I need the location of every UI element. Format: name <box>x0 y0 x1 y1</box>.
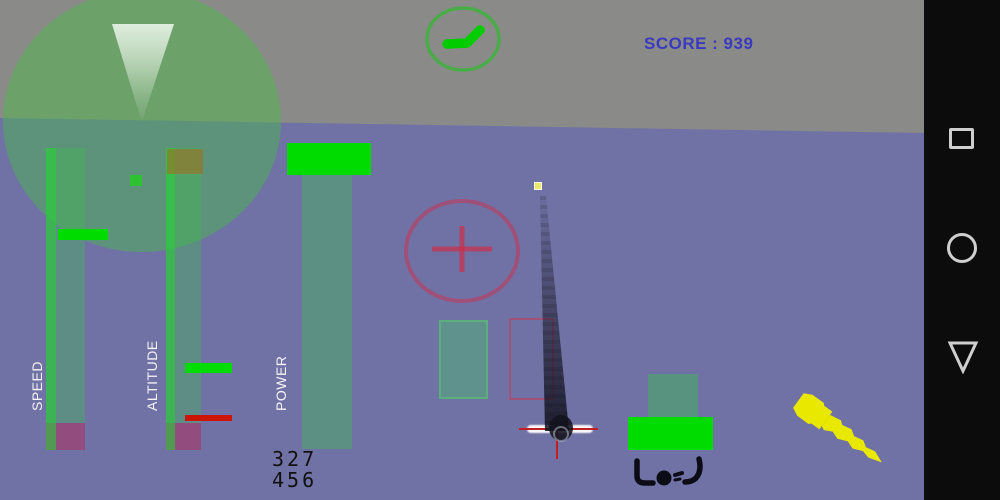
power-readout-line1: 327 <box>272 449 317 470</box>
glyph-left-hook <box>637 461 653 483</box>
glyph-right-hook <box>685 459 700 482</box>
speed-indicator-bar <box>58 229 108 240</box>
power-readout: 327 456 <box>272 449 317 491</box>
recents-button[interactable] <box>949 128 974 149</box>
game-viewport[interactable]: SPEED ALTITUDE POWER 327 456 SCORE : 939 <box>0 0 924 500</box>
power-label: POWER <box>273 356 289 411</box>
back-button[interactable] <box>947 340 979 374</box>
altitude-label: ALTITUDE <box>144 340 160 411</box>
android-nav-bar <box>924 0 1000 500</box>
power-gauge-level <box>287 143 371 175</box>
aircraft-icon <box>447 30 480 44</box>
altitude-gauge-cap <box>167 149 203 174</box>
power-gauge-track <box>302 175 352 449</box>
glyph-dash-bottom <box>675 479 680 480</box>
smoke-bands <box>540 196 569 431</box>
safe-zone-box <box>439 320 488 399</box>
screw-shaft <box>821 413 888 469</box>
aim-reticle <box>400 195 525 307</box>
altitude-indicator-bar <box>185 363 232 373</box>
score-text: SCORE : 939 <box>644 34 753 54</box>
altitude-gauge-fill <box>166 148 175 450</box>
power-readout-line2: 456 <box>272 470 317 491</box>
triangle-down-icon <box>950 343 976 371</box>
screw-powerup-icon <box>788 372 908 477</box>
altitude-warning-bar <box>185 415 232 421</box>
building-upper <box>648 374 698 417</box>
home-button[interactable] <box>947 233 977 263</box>
screen: SPEED ALTITUDE POWER 327 456 SCORE : 939 <box>0 0 1000 500</box>
glyph-dot <box>657 471 672 486</box>
speed-gauge-fill <box>46 148 56 450</box>
crash-marker-glyph <box>630 456 710 494</box>
glyph-dash-top <box>675 473 682 475</box>
smoke-trail <box>528 178 598 478</box>
radar-blip-icon <box>130 175 142 186</box>
building-base <box>628 417 713 450</box>
aircraft-status-indicator <box>424 5 504 73</box>
speed-label: SPEED <box>29 361 45 411</box>
